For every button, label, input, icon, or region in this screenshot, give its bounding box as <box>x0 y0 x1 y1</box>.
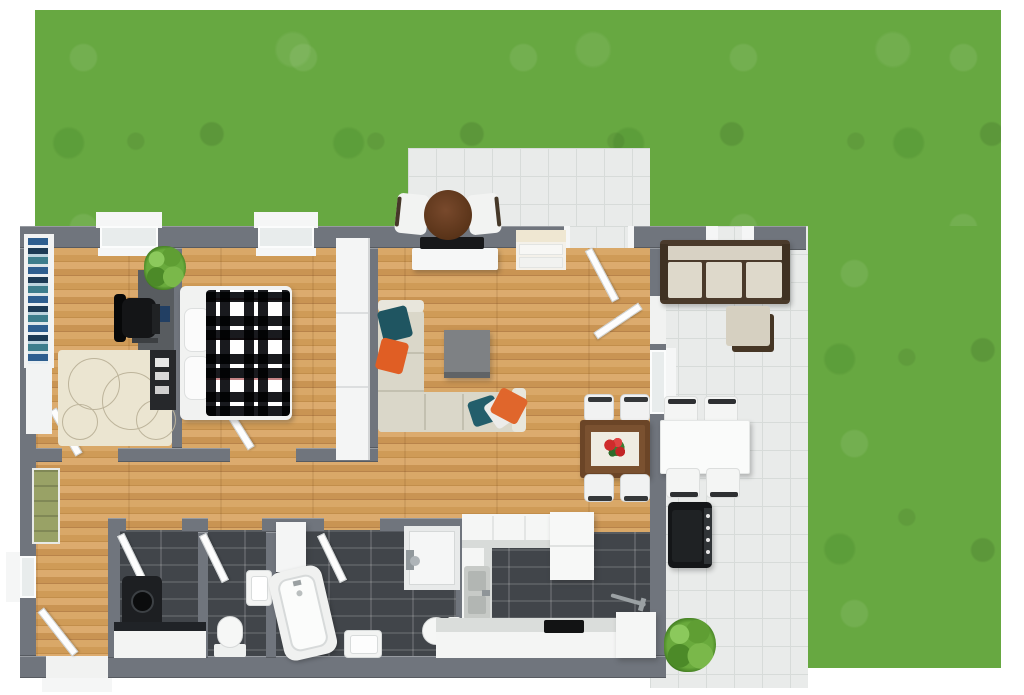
sofa-seat-cushion <box>706 262 742 298</box>
sofa-seat-cushion <box>668 262 702 298</box>
outdoor-chair <box>666 468 700 498</box>
outdoor-chair <box>706 468 740 498</box>
chair-frame <box>670 492 698 497</box>
grill-lid <box>672 510 702 562</box>
ottoman <box>726 306 774 352</box>
sofa-seat-cushion <box>746 262 782 298</box>
grill-knob <box>706 526 710 530</box>
grill-knob <box>706 514 710 518</box>
ottoman-top <box>726 306 770 346</box>
chair-frame <box>668 399 696 404</box>
sofa-arm <box>660 244 668 300</box>
sofa-arm <box>782 244 790 300</box>
chair-frame <box>710 492 738 497</box>
layer-patio-right-furniture <box>0 0 1024 695</box>
patio-plant <box>664 618 716 672</box>
outdoor-table <box>660 420 750 474</box>
sofa-back-cushion <box>666 246 784 260</box>
grill-knob <box>706 550 710 554</box>
outdoor-sofa <box>660 240 790 304</box>
grill <box>668 502 712 568</box>
chair-frame <box>708 399 736 404</box>
grill-knob <box>706 538 710 542</box>
floorplan-canvas <box>0 0 1024 695</box>
